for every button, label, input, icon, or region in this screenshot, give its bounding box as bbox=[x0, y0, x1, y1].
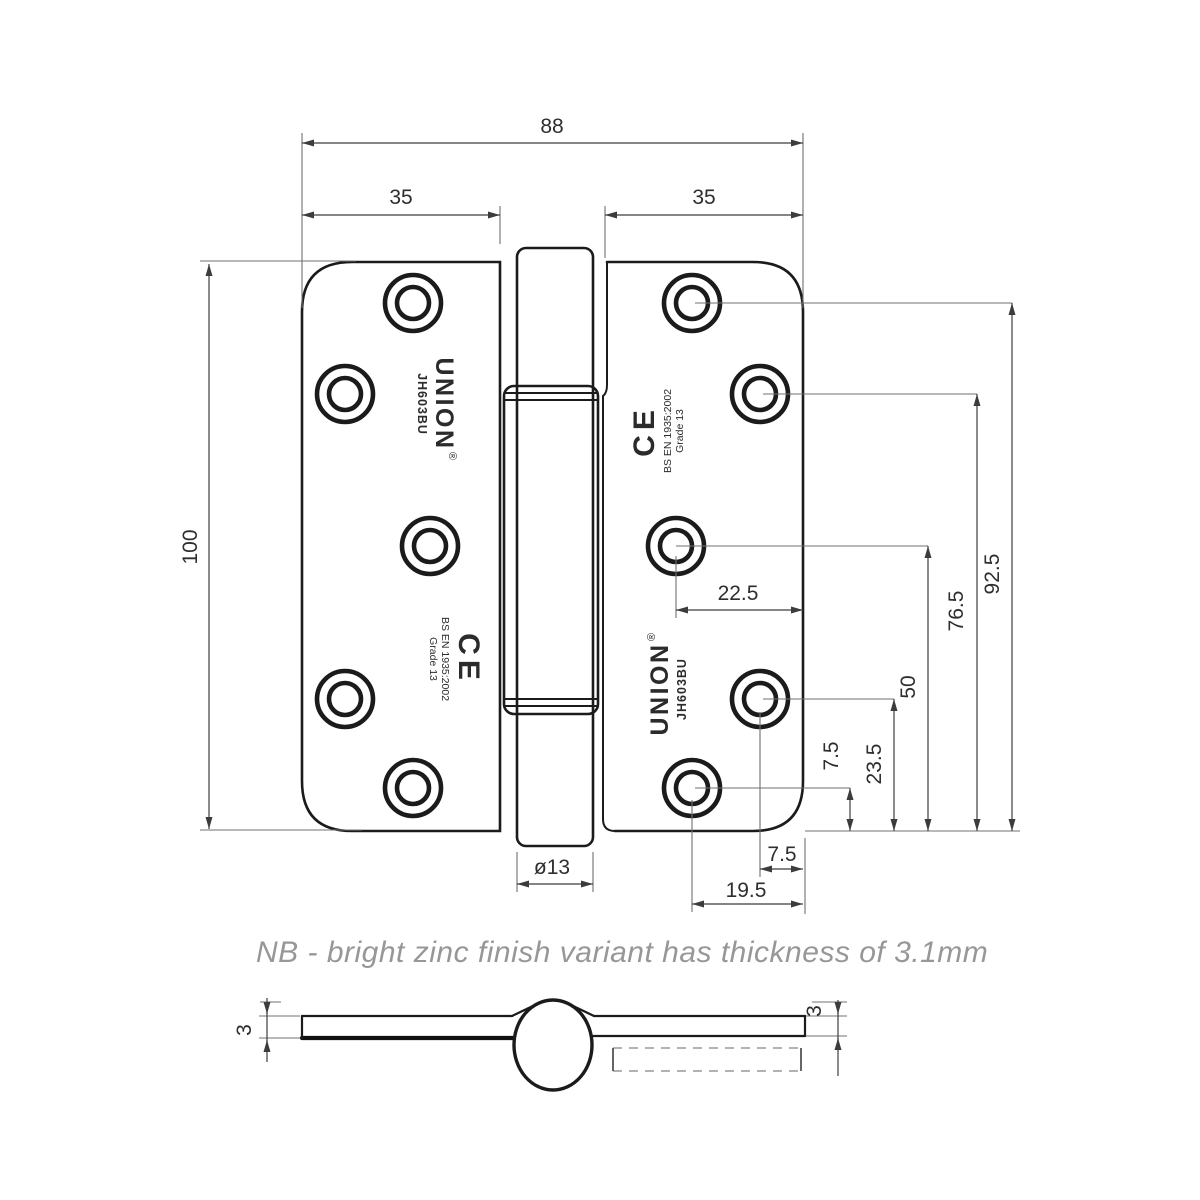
registered-mark-right: ® bbox=[646, 633, 658, 641]
dim-left-leaf-width: 35 bbox=[389, 186, 412, 209]
dim-thickness-right: 3 bbox=[803, 1005, 826, 1017]
variant-dashed-outline bbox=[613, 1048, 801, 1071]
brand-text-right: UNION bbox=[646, 642, 674, 735]
ce-text-left: CE bbox=[452, 633, 485, 685]
screw-holes-left-leaf bbox=[317, 275, 458, 816]
extension-lines bbox=[200, 133, 1020, 914]
side-knuckle bbox=[514, 1000, 592, 1090]
right-leaf-knuckle-cutout bbox=[603, 262, 615, 831]
grade-text-left: Grade 13 bbox=[427, 637, 439, 681]
dim-overall-width: 88 bbox=[540, 115, 563, 138]
side-view: 3 3 bbox=[233, 998, 847, 1090]
dim-hole-inset-edge: 7.5 bbox=[767, 843, 796, 866]
ce-mark-left: CE BS EN 1935:2002 Grade 13 bbox=[427, 617, 485, 701]
dim-hole-height-2: 76.5 bbox=[945, 591, 968, 632]
model-text-right: JH603BU bbox=[675, 658, 689, 720]
dim-hole-height-4: 23.5 bbox=[863, 744, 886, 785]
dim-hole-height-5: 7.5 bbox=[820, 741, 843, 770]
model-text-left: JH603BU bbox=[415, 373, 429, 435]
grade-text-right: Grade 13 bbox=[674, 409, 686, 453]
dim-hole-inset-middle: 22.5 bbox=[718, 582, 759, 605]
union-logo-left: UNION JH603BU ® bbox=[415, 357, 458, 460]
dimension-lines bbox=[209, 143, 1012, 904]
hinge-technical-drawing: UNION JH603BU ® CE BS EN 1935:2002 Grade… bbox=[0, 0, 1200, 1200]
union-logo-right: UNION JH603BU ® bbox=[646, 633, 689, 736]
dim-right-leaf-width: 35 bbox=[692, 186, 715, 209]
brand-text-left: UNION bbox=[430, 357, 458, 450]
dim-height: 100 bbox=[179, 529, 202, 564]
registered-mark-left: ® bbox=[446, 452, 458, 460]
dim-hole-height-1: 92.5 bbox=[981, 554, 1004, 595]
dim-thickness-left: 3 bbox=[233, 1024, 256, 1036]
dim-hole-inset-corner: 19.5 bbox=[726, 879, 767, 902]
note-text: NB - bright zinc finish variant has thic… bbox=[256, 936, 988, 969]
standard-text-right: BS EN 1935:2002 bbox=[662, 389, 674, 473]
main-view: UNION JH603BU ® CE BS EN 1935:2002 Grade… bbox=[179, 115, 1020, 914]
dim-hole-height-3: 50 bbox=[897, 675, 920, 698]
ce-mark-right: CE BS EN 1935:2002 Grade 13 bbox=[628, 389, 686, 473]
dim-knuckle-diameter: ø13 bbox=[534, 856, 570, 879]
ce-text-right: CE bbox=[628, 405, 661, 457]
standard-text-left: BS EN 1935:2002 bbox=[439, 617, 451, 701]
